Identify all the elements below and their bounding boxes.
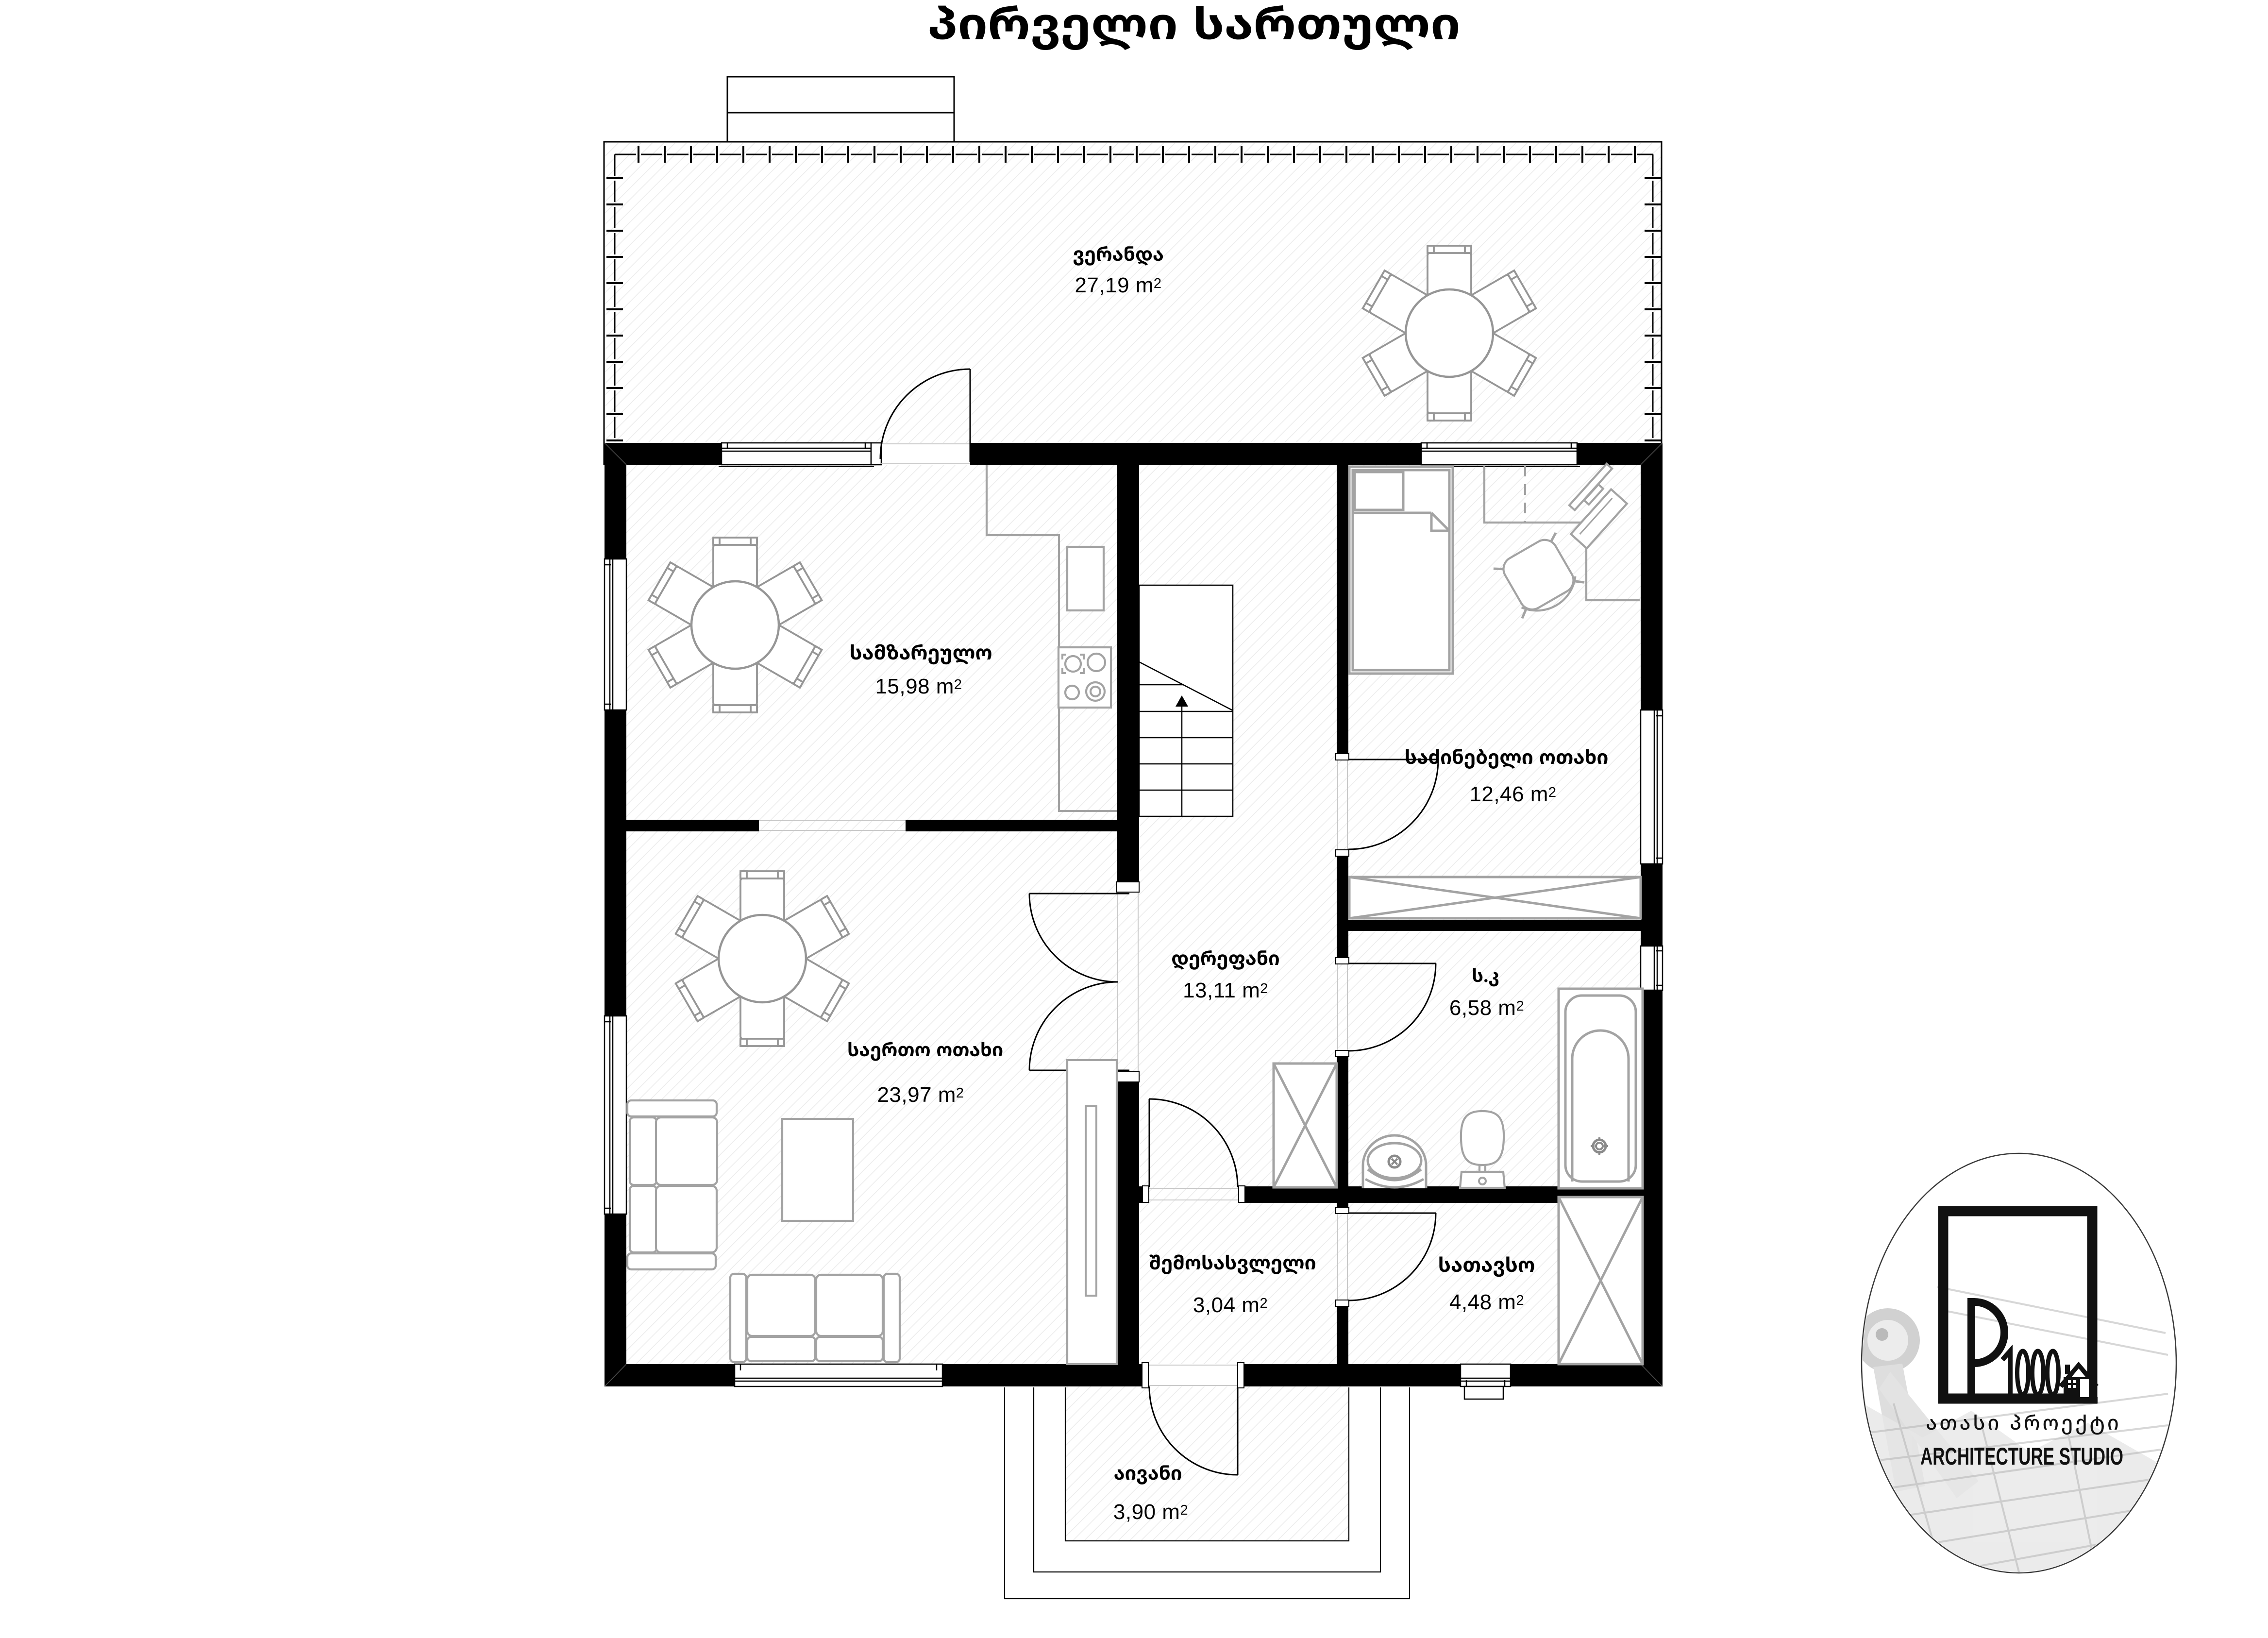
svg-text:15,98 m2: 15,98 m2 — [875, 675, 962, 698]
svg-text:23,97 m2: 23,97 m2 — [877, 1083, 964, 1107]
svg-text:6,58 m2: 6,58 m2 — [1449, 996, 1524, 1020]
svg-text:12,46 m2: 12,46 m2 — [1469, 782, 1556, 806]
svg-text:13,11 m2: 13,11 m2 — [1183, 979, 1268, 1002]
svg-text:3,90 m2: 3,90 m2 — [1113, 1500, 1188, 1524]
svg-text:27,19 m2: 27,19 m2 — [1075, 273, 1161, 297]
svg-text:4,48 m2: 4,48 m2 — [1449, 1290, 1524, 1314]
svg-text:ARCHITECTURE STUDIO: ARCHITECTURE STUDIO — [1920, 1443, 2123, 1470]
svg-text:3,04 m2: 3,04 m2 — [1193, 1293, 1268, 1317]
